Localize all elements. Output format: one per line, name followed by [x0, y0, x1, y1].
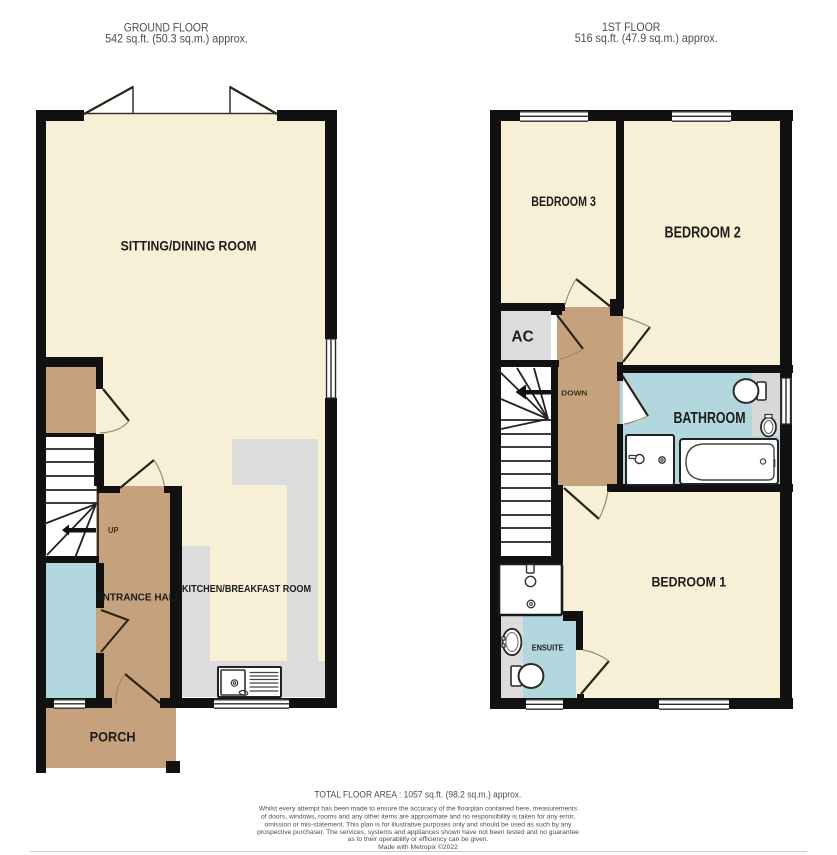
svg-text:SITTING/DINING ROOM: SITTING/DINING ROOM — [121, 239, 257, 255]
svg-text:BATHROOM: BATHROOM — [673, 410, 745, 427]
svg-text:DOWN: DOWN — [561, 390, 587, 397]
svg-text:542 sq.ft. (50.3 sq.m.) approx: 542 sq.ft. (50.3 sq.m.) approx. — [105, 31, 248, 45]
svg-text:UP: UP — [108, 526, 119, 535]
svg-text:Made with Metropix ©2022: Made with Metropix ©2022 — [378, 843, 458, 851]
svg-text:of doors, windows, rooms and a: of doors, windows, rooms and any other i… — [261, 814, 575, 821]
svg-text:BEDROOM 3: BEDROOM 3 — [531, 194, 596, 209]
svg-text:BEDROOM 1: BEDROOM 1 — [651, 574, 726, 590]
svg-text:Whilst every attempt has been: Whilst every attempt has been made to en… — [259, 806, 578, 813]
svg-text:ENTRANCE HALL: ENTRANCE HALL — [96, 592, 182, 604]
svg-text:KITCHEN/BREAKFAST ROOM: KITCHEN/BREAKFAST ROOM — [182, 584, 311, 595]
svg-text:PORCH: PORCH — [90, 729, 136, 745]
svg-text:as to their operability or eff: as to their operability or efficiency ca… — [348, 836, 489, 843]
svg-text:TOTAL FLOOR AREA : 1057 sq.ft.: TOTAL FLOOR AREA : 1057 sq.ft. (98.2 sq.… — [314, 789, 521, 800]
svg-text:ENSUITE: ENSUITE — [532, 643, 564, 652]
svg-text:BEDROOM 2: BEDROOM 2 — [665, 225, 741, 242]
svg-text:omission or mis-statement. Thi: omission or mis-statement. This plan is … — [265, 821, 573, 828]
svg-text:516 sq.ft. (47.9 sq.m.) approx: 516 sq.ft. (47.9 sq.m.) approx. — [575, 31, 718, 45]
svg-text:AC: AC — [512, 328, 534, 345]
